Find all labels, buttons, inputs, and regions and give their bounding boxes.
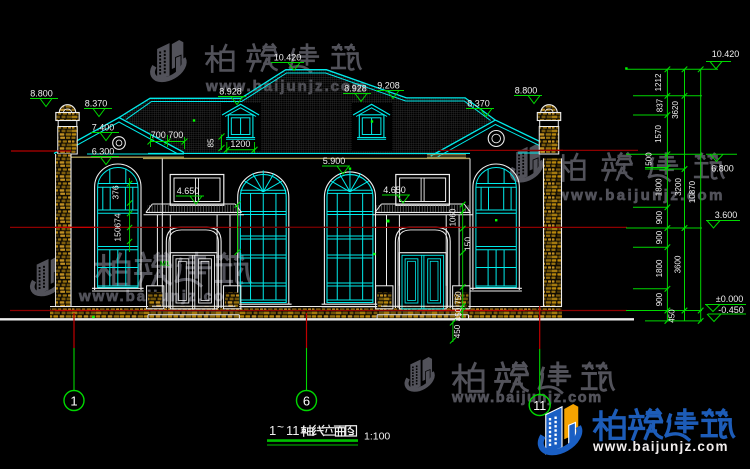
svg-text:10.420: 10.420 — [712, 49, 740, 59]
svg-text:450: 450 — [453, 324, 462, 338]
svg-text:1212: 1212 — [654, 73, 663, 91]
svg-text:376: 376 — [111, 185, 121, 199]
svg-text:837: 837 — [656, 98, 665, 112]
svg-text:6: 6 — [303, 394, 310, 409]
svg-text:900: 900 — [655, 292, 664, 306]
svg-text:1: 1 — [269, 423, 276, 438]
svg-text:150: 150 — [463, 237, 473, 251]
svg-text:11: 11 — [286, 423, 300, 438]
svg-text:150: 150 — [113, 227, 123, 241]
svg-text:3620: 3620 — [671, 101, 680, 119]
svg-text:5.900: 5.900 — [323, 156, 346, 166]
svg-text:11: 11 — [533, 399, 546, 413]
svg-text:8.800: 8.800 — [30, 89, 53, 99]
svg-text:±0.000: ±0.000 — [716, 294, 743, 304]
svg-text:1570: 1570 — [654, 125, 663, 143]
svg-text:www.baijunjz.com: www.baijunjz.com — [556, 187, 725, 204]
svg-text:3200: 3200 — [674, 178, 683, 196]
svg-text:450: 450 — [668, 309, 677, 323]
svg-text:700 700: 700 700 — [151, 130, 184, 140]
svg-text:900: 900 — [655, 230, 664, 244]
svg-text:6.300: 6.300 — [92, 147, 115, 157]
svg-text:900: 900 — [655, 210, 664, 224]
svg-text:1800: 1800 — [655, 178, 664, 196]
svg-text:www.baijunjz.com: www.baijunjz.com — [592, 439, 729, 454]
svg-text:8.370: 8.370 — [85, 99, 108, 109]
svg-text:3.600: 3.600 — [715, 210, 738, 220]
svg-text:1:100: 1:100 — [364, 431, 390, 443]
svg-text:4.650: 4.650 — [177, 186, 200, 196]
svg-text:1800: 1800 — [655, 259, 664, 277]
svg-text:85: 85 — [207, 138, 216, 147]
svg-text:8.928: 8.928 — [344, 84, 367, 94]
svg-text:M1: M1 — [160, 261, 170, 268]
svg-text:7.400: 7.400 — [92, 123, 115, 133]
svg-text:750: 750 — [454, 291, 463, 305]
svg-text:www.baijunjz.com: www.baijunjz.com — [451, 390, 603, 406]
svg-text:1: 1 — [70, 394, 77, 409]
svg-text:500: 500 — [645, 152, 654, 166]
svg-text:-0.450: -0.450 — [718, 305, 744, 315]
svg-text:6.800: 6.800 — [711, 164, 734, 174]
svg-text:8.928: 8.928 — [219, 87, 242, 97]
svg-text:10.420: 10.420 — [274, 53, 302, 63]
svg-text:1200: 1200 — [230, 139, 250, 149]
svg-text:450: 450 — [454, 307, 463, 321]
svg-text:1060: 1060 — [449, 208, 458, 226]
svg-text:10870: 10870 — [688, 180, 697, 203]
svg-text:3600: 3600 — [674, 255, 683, 273]
svg-text:8.370: 8.370 — [467, 99, 490, 109]
svg-text:~: ~ — [277, 420, 284, 434]
svg-text:4.650: 4.650 — [383, 185, 406, 195]
svg-text:9.208: 9.208 — [377, 81, 400, 91]
svg-text:8.800: 8.800 — [515, 86, 538, 96]
svg-text:674: 674 — [113, 213, 123, 227]
